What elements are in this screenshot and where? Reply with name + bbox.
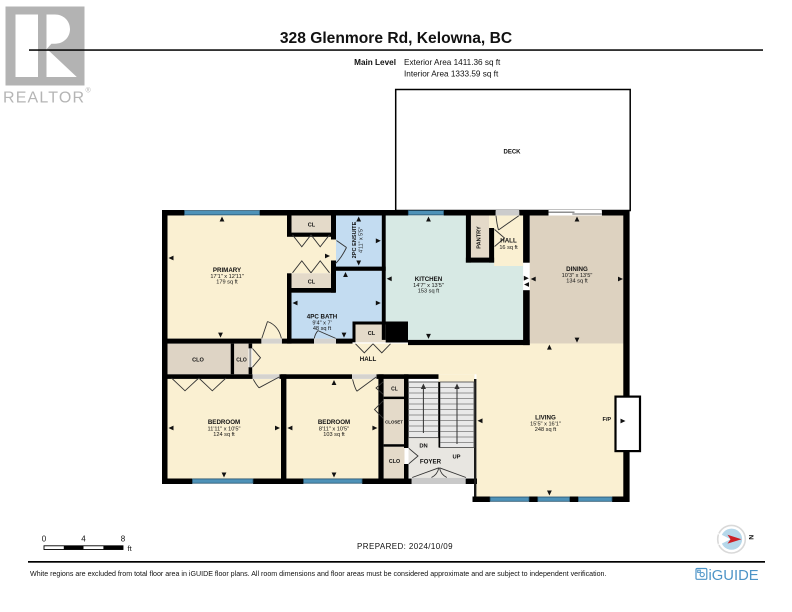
svg-text:48 sq ft: 48 sq ft	[313, 326, 332, 332]
svg-text:UP: UP	[452, 454, 460, 460]
svg-text:White regions are excluded fro: White regions are excluded from total fl…	[30, 570, 607, 578]
svg-text:179 sq ft: 179 sq ft	[216, 280, 238, 286]
svg-text:2PC ENSUITE: 2PC ENSUITE	[352, 221, 358, 258]
svg-text:CL: CL	[308, 223, 316, 229]
svg-text:DN: DN	[419, 444, 427, 450]
svg-text:248 sq ft: 248 sq ft	[535, 427, 557, 433]
svg-text:Exterior Area 1411.36 sq ft: Exterior Area 1411.36 sq ft	[404, 58, 501, 67]
svg-text:PREPARED: 2024/10/09: PREPARED: 2024/10/09	[357, 542, 453, 551]
svg-text:F/P: F/P	[602, 417, 611, 423]
svg-text:CLO: CLO	[192, 358, 204, 364]
svg-text:4PC BATH: 4PC BATH	[307, 314, 338, 321]
svg-text:8: 8	[121, 535, 126, 544]
svg-text:N: N	[747, 535, 754, 540]
svg-text:PRIMARY: PRIMARY	[213, 267, 242, 274]
svg-text:4'11" x 5'5": 4'11" x 5'5"	[358, 227, 364, 253]
svg-text:CL: CL	[368, 331, 376, 337]
svg-text:0: 0	[42, 535, 47, 544]
svg-text:4: 4	[81, 535, 86, 544]
svg-text:16 sq ft: 16 sq ft	[499, 245, 518, 251]
svg-text:CLO: CLO	[389, 459, 400, 465]
svg-text:DECK: DECK	[503, 150, 521, 156]
svg-text:LIVING: LIVING	[535, 414, 556, 421]
svg-text:REALTOR: REALTOR	[3, 90, 84, 107]
svg-text:®: ®	[86, 87, 92, 95]
svg-text:BEDROOM: BEDROOM	[318, 419, 350, 426]
svg-text:328 Glenmore Rd, Kelowna, BC: 328 Glenmore Rd, Kelowna, BC	[280, 30, 512, 47]
svg-text:124 sq ft: 124 sq ft	[213, 432, 235, 438]
svg-text:KITCHEN: KITCHEN	[415, 276, 443, 283]
svg-text:iGUIDE: iGUIDE	[709, 568, 759, 584]
svg-text:CLOSET: CLOSET	[385, 420, 403, 425]
svg-text:HALL: HALL	[360, 356, 377, 363]
svg-text:CL: CL	[308, 280, 316, 286]
svg-text:CL: CL	[391, 387, 398, 393]
svg-text:FOYER: FOYER	[420, 459, 442, 466]
svg-text:HALL: HALL	[500, 238, 517, 245]
svg-text:Interior Area 1333.59 sq ft: Interior Area 1333.59 sq ft	[404, 70, 499, 79]
svg-text:CLO: CLO	[236, 358, 247, 364]
svg-text:DINING: DINING	[566, 266, 588, 273]
svg-text:Main Level: Main Level	[354, 58, 396, 67]
svg-text:153 sq ft: 153 sq ft	[418, 288, 440, 294]
svg-text:134 sq ft: 134 sq ft	[566, 278, 588, 284]
svg-text:BEDROOM: BEDROOM	[208, 419, 240, 426]
svg-text:103 sq ft: 103 sq ft	[323, 432, 345, 438]
svg-text:PANTRY: PANTRY	[477, 226, 483, 249]
